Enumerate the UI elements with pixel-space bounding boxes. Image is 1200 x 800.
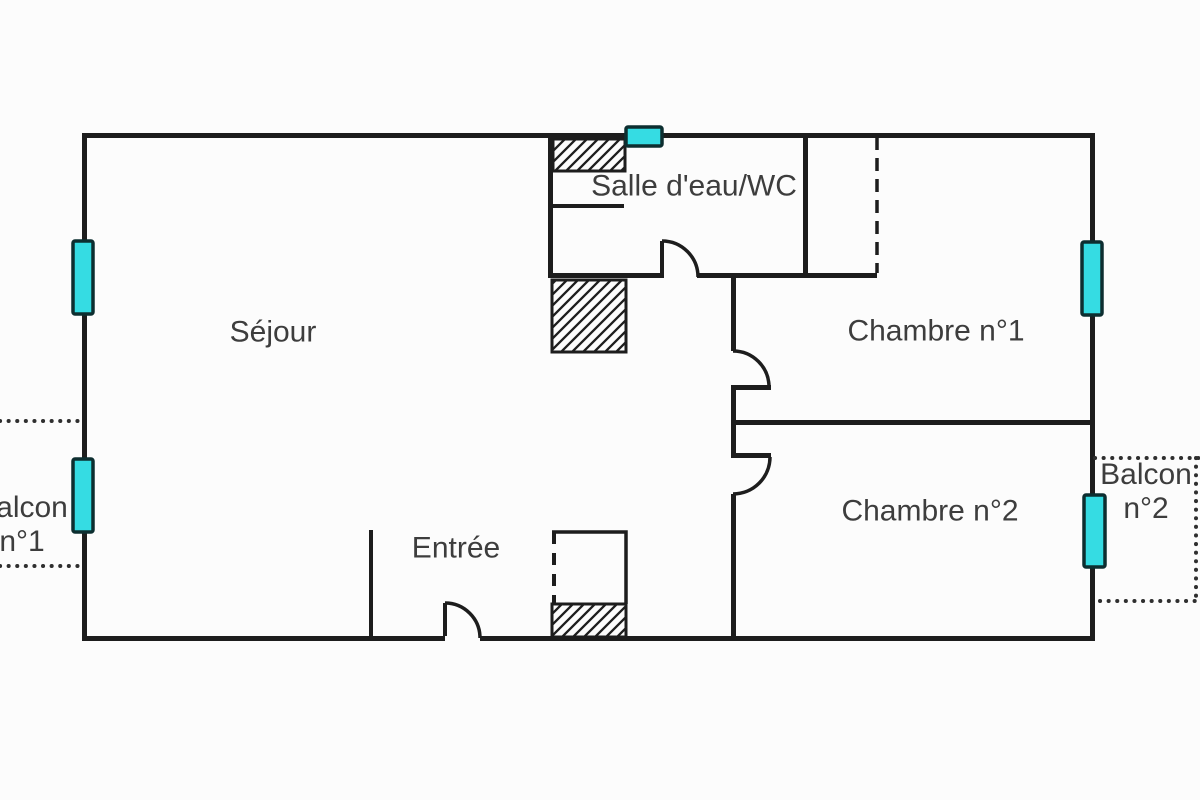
label-entrance: Entrée — [412, 532, 500, 565]
door-bedroom1-leaf — [731, 385, 771, 390]
label-balcony-2-line1: Balcon — [1091, 458, 1200, 492]
label-bedroom-2: Chambre n°2 — [841, 495, 1018, 528]
wall-center-lower — [731, 494, 736, 641]
window-right-bedroom1 — [1082, 242, 1102, 315]
label-balcony-1-line1: Balcon — [0, 491, 77, 525]
hatched-block-center — [552, 280, 626, 352]
wall-entry-stub — [369, 530, 373, 636]
window-left-living — [73, 241, 93, 314]
floor-plan-drawing — [0, 0, 1200, 800]
wall-closet-left — [803, 133, 808, 278]
label-balcony-2: Balcon n°2 — [1091, 458, 1200, 526]
wall-bedroom-divider — [731, 420, 1095, 425]
door-bathroom-arc — [662, 241, 698, 277]
door-entry-arc — [445, 603, 480, 638]
label-living-room: Séjour — [230, 316, 317, 349]
wall-outer-bottom-left — [82, 636, 445, 641]
door-bedroom2-arc — [733, 457, 770, 494]
duct-outline-top — [552, 532, 626, 604]
label-balcony-2-line2: n°2 — [1091, 492, 1200, 526]
door-entry-leaf — [443, 603, 447, 636]
window-top — [626, 127, 662, 146]
wall-center-upper — [731, 273, 736, 351]
hatched-block-bathroom — [553, 139, 625, 171]
hatched-block-entry — [552, 604, 626, 637]
wall-bathroom-bottom-right — [697, 273, 877, 278]
wall-bathroom-bottom-left — [548, 273, 662, 278]
floor-plan: Séjour Salle d'eau/WC Chambre n°1 Chambr… — [0, 0, 1200, 800]
wall-bathroom-half — [548, 204, 624, 208]
label-balcony-1-line2: n°1 — [0, 525, 77, 559]
wall-outer-left — [82, 133, 87, 641]
wall-outer-top — [82, 133, 1095, 138]
door-bathroom-leaf — [660, 241, 664, 278]
label-balcony-1: Balcon n°1 — [0, 491, 77, 559]
label-bedroom-1: Chambre n°1 — [847, 315, 1024, 348]
door-bedroom1-arc — [733, 351, 769, 387]
label-bathroom-wc: Salle d'eau/WC — [591, 170, 797, 203]
door-bedroom2-leaf — [731, 453, 771, 458]
